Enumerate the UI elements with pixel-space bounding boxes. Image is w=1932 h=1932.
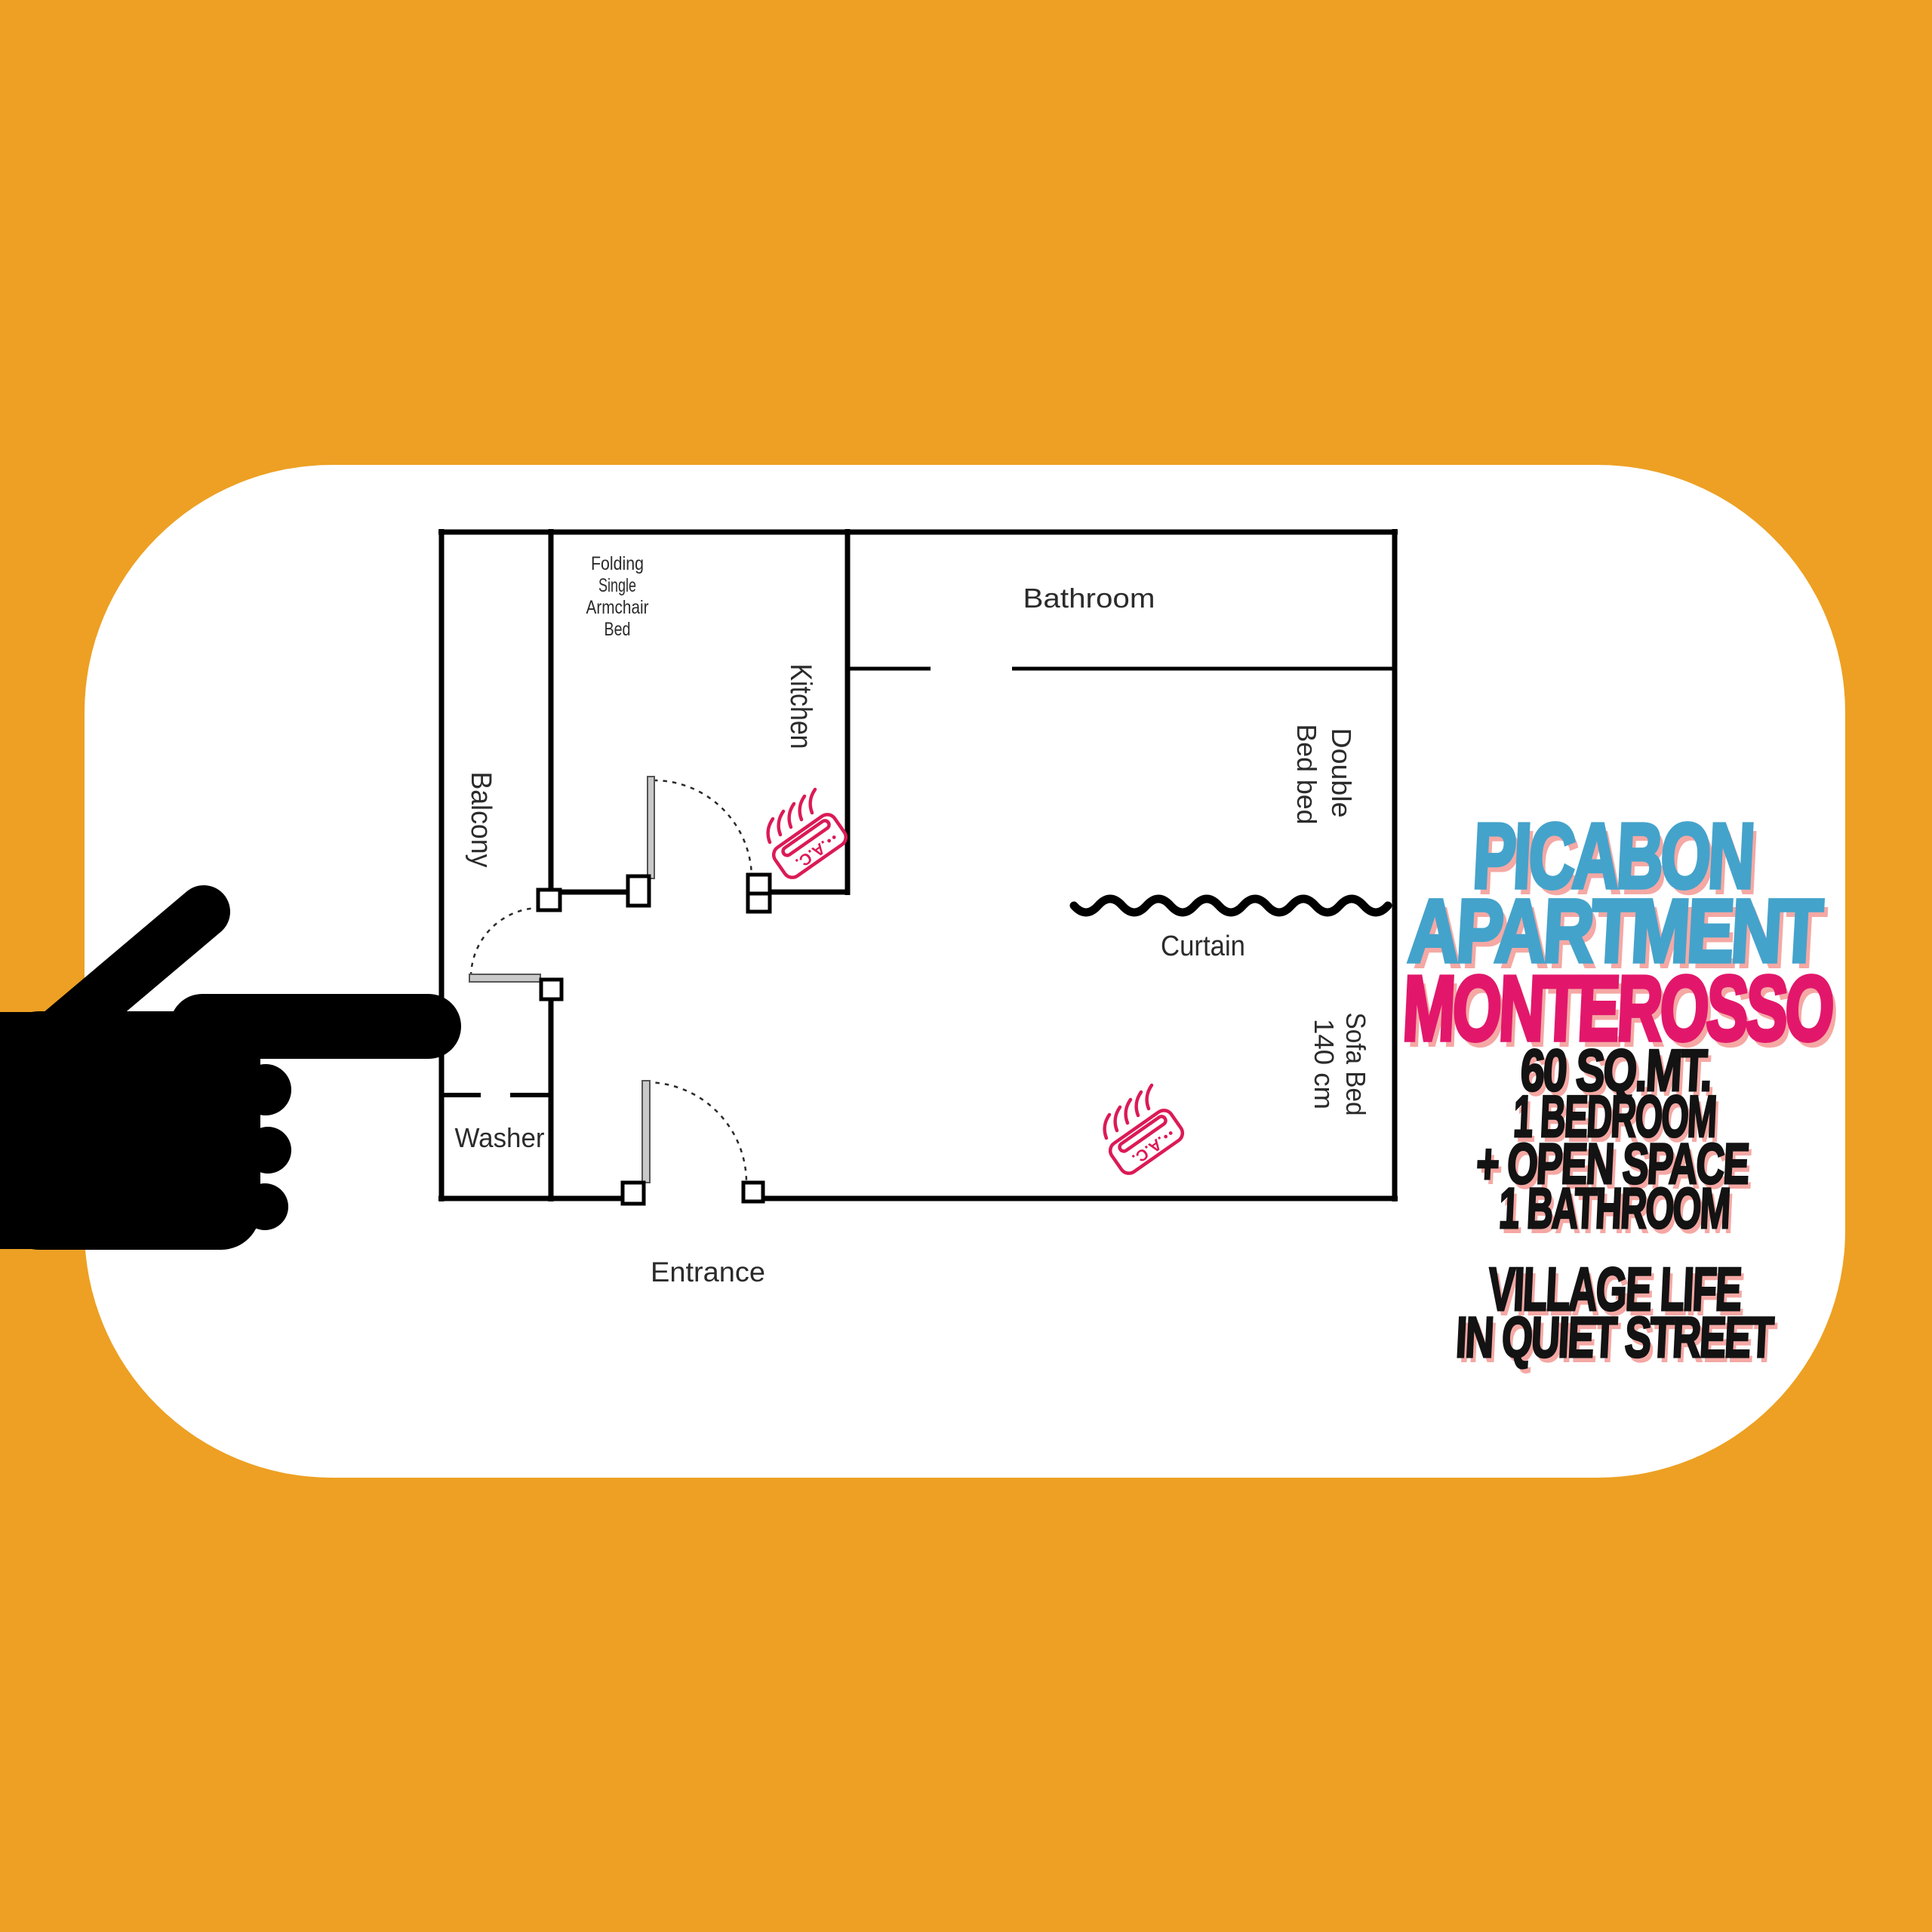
svg-text:Kitchen: Kitchen [784, 664, 817, 749]
svg-text:Single: Single [598, 575, 636, 596]
svg-text:Entrance: Entrance [651, 1257, 765, 1287]
svg-text:Bed bed: Bed bed [1291, 724, 1322, 825]
svg-text:Armchair: Armchair [586, 597, 649, 618]
svg-text:Washer: Washer [455, 1122, 545, 1153]
svg-text:Curtain: Curtain [1161, 931, 1245, 962]
svg-text:Sofa Bed: Sofa Bed [1340, 1013, 1371, 1116]
svg-text:Folding: Folding [591, 553, 644, 574]
svg-text:Bed: Bed [605, 619, 631, 640]
svg-text:Double: Double [1326, 728, 1357, 818]
svg-text:140 cm: 140 cm [1309, 1019, 1340, 1109]
svg-text:Bathroom: Bathroom [1023, 583, 1155, 614]
svg-text:Balcony: Balcony [465, 772, 497, 868]
